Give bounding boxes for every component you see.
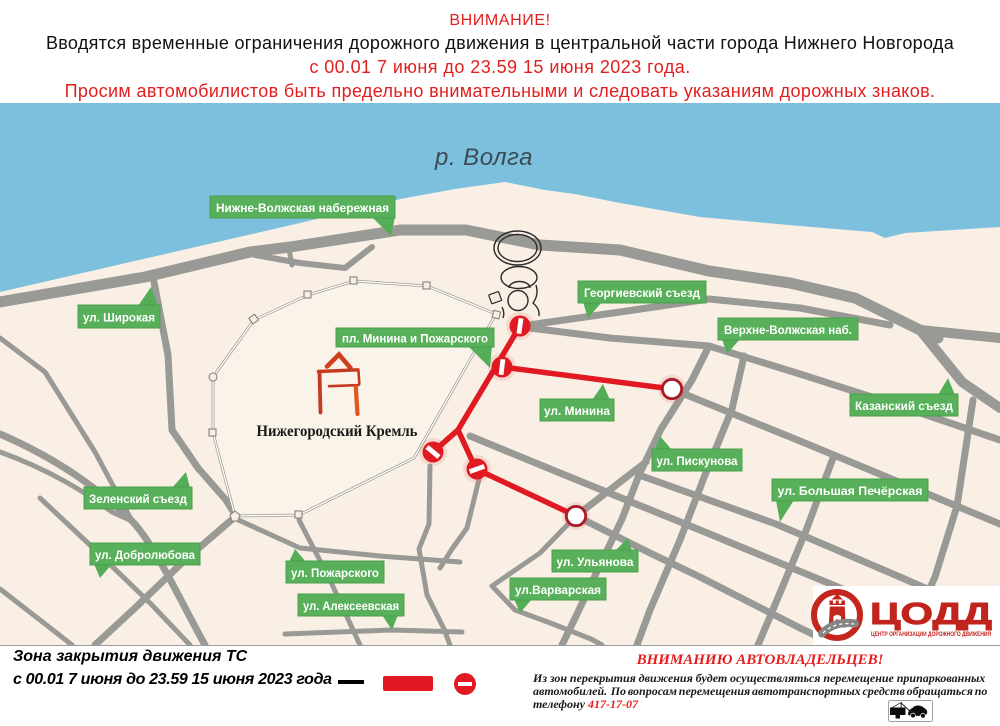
svg-text:ЦОДД: ЦОДД	[870, 596, 992, 631]
svg-text:р. Волга: р. Волга	[434, 144, 533, 171]
svg-text:Георгиевский съезд: Георгиевский съезд	[584, 286, 700, 300]
svg-text:ул. Ульянова: ул. Ульянова	[557, 555, 634, 569]
svg-text:пл. Минина и Пожарского: пл. Минина и Пожарского	[342, 332, 488, 346]
svg-text:Верхне-Волжская наб.: Верхне-Волжская наб.	[724, 323, 852, 337]
svg-text:ЦЕНТР ОРГАНИЗАЦИИ ДОРОЖНОГО ДВ: ЦЕНТР ОРГАНИЗАЦИИ ДОРОЖНОГО ДВИЖЕНИЯ	[871, 631, 991, 638]
svg-text:Нижегородский Кремль: Нижегородский Кремль	[257, 423, 418, 440]
svg-text:ул. Большая Печёрская: ул. Большая Печёрская	[778, 484, 923, 498]
svg-text:Казанский съезд: Казанский съезд	[855, 399, 953, 413]
svg-text:ул. Минина: ул. Минина	[544, 404, 610, 418]
svg-text:ул. Широкая: ул. Широкая	[83, 311, 155, 325]
svg-text:ул.Варварская: ул.Варварская	[515, 583, 601, 597]
svg-text:ул. Пискунова: ул. Пискунова	[657, 454, 738, 468]
svg-text:ул. Добролюбова: ул. Добролюбова	[95, 548, 195, 562]
svg-text:ул. Алексеевская: ул. Алексеевская	[303, 599, 399, 613]
svg-text:Зеленский съезд: Зеленский съезд	[89, 492, 187, 506]
svg-text:Нижне-Волжская набережная: Нижне-Волжская набережная	[216, 201, 389, 215]
svg-text:ул. Пожарского: ул. Пожарского	[291, 566, 379, 580]
